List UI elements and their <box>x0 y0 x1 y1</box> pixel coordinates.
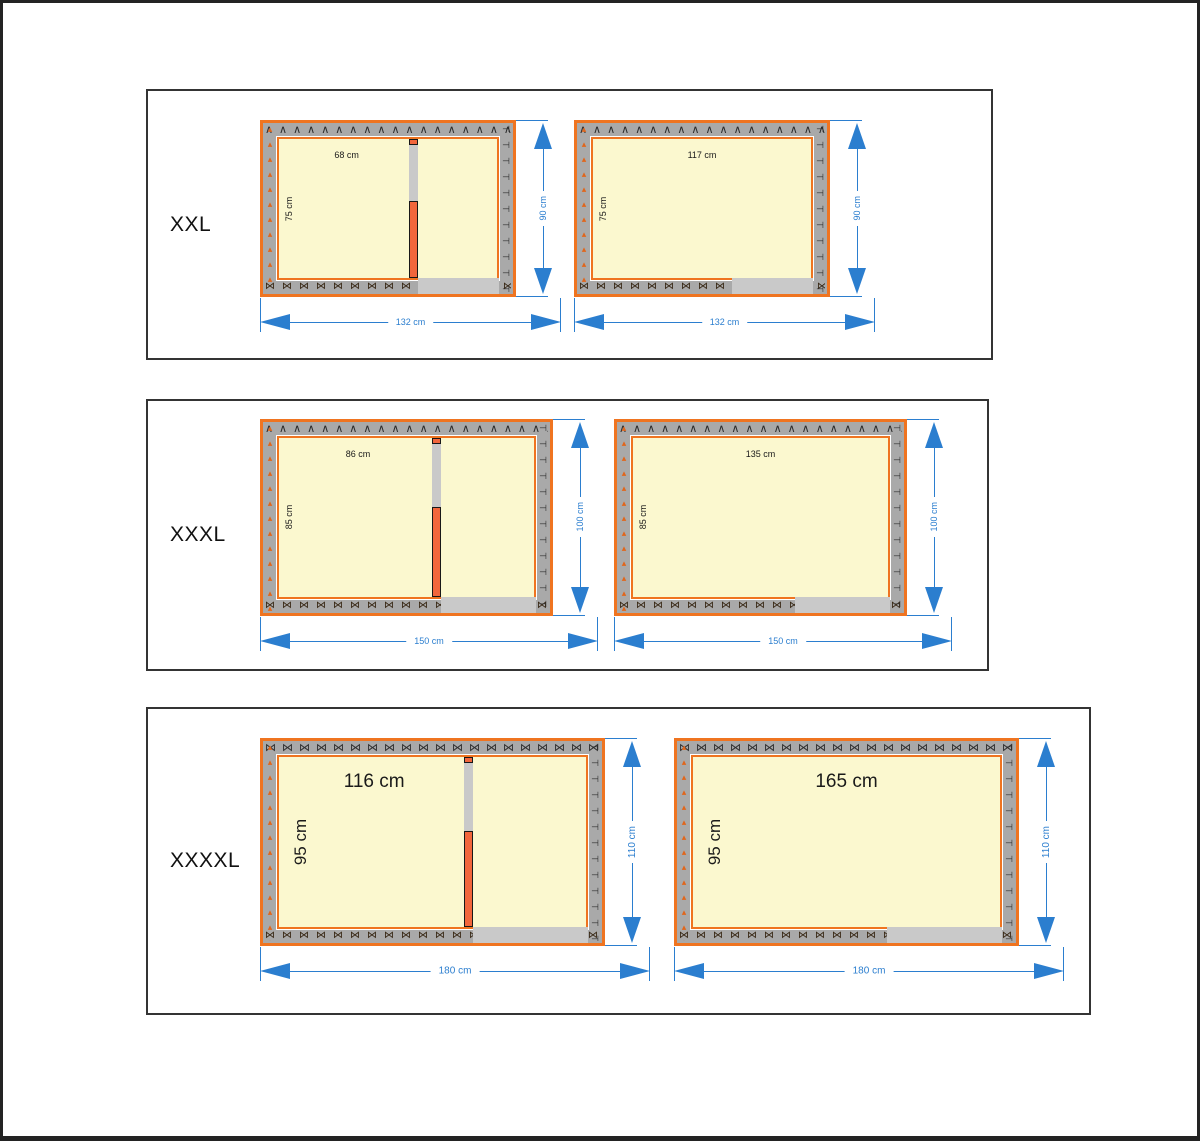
cage-floorplan: ∧∧∧∧∧∧∧∧∧∧∧∧∧∧∧∧∧∧∧∧∧∧∧∧∧∧ ⋈⋈⋈⋈⋈⋈⋈⋈⋈⋈⋈⋈⋈… <box>260 419 553 616</box>
divider-passage-opening <box>409 145 418 201</box>
room-width-label: 135 cm <box>746 449 776 459</box>
room-width-label: 116 cm <box>344 771 405 793</box>
height-dimension-label: 110 cm <box>627 821 638 863</box>
cage-floorplan: ∧∧∧∧∧∧∧∧∧∧∧∧∧∧∧∧∧∧∧∧∧∧∧∧∧∧ ⋈⋈⋈⋈⋈⋈⋈⋈⋈⋈⋈⋈⋈… <box>614 419 907 616</box>
arrow-left-icon <box>260 963 290 979</box>
width-dimension-label: 132 cm <box>702 317 748 327</box>
vertical-dimension: 100 cm <box>916 419 952 616</box>
insulation-hatch-left: ▴▴▴▴▴▴▴▴▴▴▴▴▴▴▴▴▴▴ <box>677 743 691 941</box>
room-width-label: 86 cm <box>346 449 371 459</box>
arrow-left-icon <box>260 314 290 330</box>
dimension-line <box>580 448 581 498</box>
horizontal-dimension: 132 cm <box>260 297 561 343</box>
dimension-line <box>857 226 858 268</box>
insulation-hatch-left: ▴▴▴▴▴▴▴▴▴▴▴▴▴▴▴▴▴▴ <box>263 125 277 292</box>
cage-floorplan: ∧∧∧∧∧∧∧∧∧∧∧∧∧∧∧∧∧∧∧∧∧∧∧∧∧∧ ⋈⋈⋈⋈⋈⋈⋈⋈⋈⋈⋈⋈⋈… <box>260 120 516 297</box>
room-height-label: 85 cm <box>284 505 294 530</box>
vertical-dimension: 110 cm <box>614 738 650 946</box>
arrow-up-icon <box>925 422 943 448</box>
panel-size-label: XXXXL <box>148 849 260 873</box>
vertical-dimension: 90 cm <box>839 120 875 297</box>
arrow-left-icon <box>614 633 644 649</box>
cage-interior: 117 cm 75 cm <box>591 137 813 280</box>
insulation-hatch-right: ⊣⊣⊣⊣⊣⊣⊣⊣⊣⊣⊣⊣⊣⊣⊣⊣⊣⊣ <box>536 424 550 611</box>
cage-figure-open: ∧∧∧∧∧∧∧∧∧∧∧∧∧∧∧∧∧∧∧∧∧∧∧∧∧∧ ⋈⋈⋈⋈⋈⋈⋈⋈⋈⋈⋈⋈⋈… <box>614 419 952 662</box>
panel-xxxl: XXXL ∧∧∧∧∧∧∧∧∧∧∧∧∧∧∧∧∧∧∧∧∧∧∧∧∧∧ ⋈⋈⋈⋈⋈⋈⋈⋈… <box>146 399 989 671</box>
height-dimension-label: 100 cm <box>575 497 585 537</box>
dimension-tick <box>1019 738 1051 739</box>
height-dimension-label: 90 cm <box>538 191 548 226</box>
figures-row: ∧∧∧∧∧∧∧∧∧∧∧∧∧∧∧∧∧∧∧∧∧∧∧∧∧∧ ⋈⋈⋈⋈⋈⋈⋈⋈⋈⋈⋈⋈⋈… <box>260 419 952 662</box>
cage-floorplan: ⋈⋈⋈⋈⋈⋈⋈⋈⋈⋈⋈⋈⋈⋈⋈⋈⋈⋈⋈⋈⋈⋈⋈⋈⋈⋈ ⋈⋈⋈⋈⋈⋈⋈⋈⋈⋈⋈⋈⋈… <box>674 738 1019 946</box>
cage-figure-open: ⋈⋈⋈⋈⋈⋈⋈⋈⋈⋈⋈⋈⋈⋈⋈⋈⋈⋈⋈⋈⋈⋈⋈⋈⋈⋈ ⋈⋈⋈⋈⋈⋈⋈⋈⋈⋈⋈⋈⋈… <box>674 738 1064 992</box>
room-height-label: 75 cm <box>598 196 608 221</box>
door-opening <box>418 278 499 294</box>
dimension-line <box>934 448 935 498</box>
room-height-label: 95 cm <box>705 819 725 865</box>
insulation-hatch-top: ∧∧∧∧∧∧∧∧∧∧∧∧∧∧∧∧∧∧∧∧∧∧∧∧∧∧ <box>265 422 548 436</box>
door-opening <box>732 278 813 294</box>
dimension-tick <box>830 120 862 121</box>
insulation-hatch-top: ∧∧∧∧∧∧∧∧∧∧∧∧∧∧∧∧∧∧∧∧∧∧∧∧∧∧ <box>579 123 825 137</box>
arrow-up-icon <box>623 741 641 767</box>
room-width-label: 68 cm <box>334 150 359 160</box>
arrow-right-icon <box>620 963 650 979</box>
vertical-dimension: 110 cm <box>1028 738 1064 946</box>
arrow-up-icon <box>848 123 866 149</box>
arrow-down-icon <box>848 268 866 294</box>
panel-size-label: XXL <box>148 213 260 237</box>
arrow-right-icon <box>922 633 952 649</box>
door-opening <box>795 597 890 613</box>
insulation-hatch-left: ▴▴▴▴▴▴▴▴▴▴▴▴▴▴▴▴▴▴ <box>577 125 591 292</box>
dimension-line <box>1046 863 1047 917</box>
panel-xxxxl: XXXXL ⋈⋈⋈⋈⋈⋈⋈⋈⋈⋈⋈⋈⋈⋈⋈⋈⋈⋈⋈⋈⋈⋈⋈⋈⋈⋈ ⋈⋈⋈⋈⋈⋈⋈… <box>146 707 1091 1015</box>
horizontal-dimension: 132 cm <box>574 297 875 343</box>
dimension-line <box>1046 767 1047 821</box>
room-width-label: 117 cm <box>688 150 717 160</box>
arrow-left-icon <box>674 963 704 979</box>
figures-row: ⋈⋈⋈⋈⋈⋈⋈⋈⋈⋈⋈⋈⋈⋈⋈⋈⋈⋈⋈⋈⋈⋈⋈⋈⋈⋈ ⋈⋈⋈⋈⋈⋈⋈⋈⋈⋈⋈⋈⋈… <box>260 738 1064 992</box>
dimension-line <box>857 149 858 191</box>
dimension-tick <box>553 419 585 420</box>
door-opening <box>441 597 536 613</box>
height-dimension-label: 90 cm <box>852 191 862 226</box>
arrow-down-icon <box>623 917 641 943</box>
insulation-hatch-right: ⊣⊣⊣⊣⊣⊣⊣⊣⊣⊣⊣⊣⊣⊣⊣⊣⊣⊣ <box>588 743 602 941</box>
room-divider <box>409 139 418 278</box>
divider-wall <box>464 831 473 927</box>
panel-xxl: XXL ∧∧∧∧∧∧∧∧∧∧∧∧∧∧∧∧∧∧∧∧∧∧∧∧∧∧ ⋈⋈⋈⋈⋈⋈⋈⋈⋈… <box>146 89 993 360</box>
arrow-right-icon <box>531 314 561 330</box>
arrow-left-icon <box>260 633 290 649</box>
dimension-line <box>632 863 633 917</box>
width-dimension-label: 150 cm <box>760 636 806 646</box>
width-dimension-label: 180 cm <box>845 966 894 977</box>
room-height-label: 95 cm <box>291 819 311 865</box>
height-dimension-label: 100 cm <box>929 497 939 537</box>
panel-size-label: XXXL <box>148 523 260 547</box>
vertical-dimension: 100 cm <box>562 419 598 616</box>
cage-interior: 135 cm 85 cm <box>631 436 890 599</box>
door-opening <box>473 927 588 943</box>
vertical-dimension: 90 cm <box>525 120 561 297</box>
dimension-line <box>543 149 544 191</box>
insulation-hatch-top: ∧∧∧∧∧∧∧∧∧∧∧∧∧∧∧∧∧∧∧∧∧∧∧∧∧∧ <box>265 123 511 137</box>
room-height-label: 85 cm <box>638 505 648 530</box>
horizontal-dimension: 180 cm <box>674 946 1064 992</box>
arrow-down-icon <box>571 587 589 613</box>
insulation-hatch-top: ⋈⋈⋈⋈⋈⋈⋈⋈⋈⋈⋈⋈⋈⋈⋈⋈⋈⋈⋈⋈⋈⋈⋈⋈⋈⋈ <box>679 741 1014 755</box>
room-divider <box>432 438 441 597</box>
width-dimension-label: 132 cm <box>388 317 434 327</box>
cage-figure-divided: ⋈⋈⋈⋈⋈⋈⋈⋈⋈⋈⋈⋈⋈⋈⋈⋈⋈⋈⋈⋈⋈⋈⋈⋈⋈⋈ ⋈⋈⋈⋈⋈⋈⋈⋈⋈⋈⋈⋈⋈… <box>260 738 650 992</box>
arrow-right-icon <box>568 633 598 649</box>
divider-wall <box>409 201 418 278</box>
arrow-up-icon <box>534 123 552 149</box>
dimension-line <box>632 767 633 821</box>
insulation-hatch-right: ⊣⊣⊣⊣⊣⊣⊣⊣⊣⊣⊣⊣⊣⊣⊣⊣⊣⊣ <box>499 125 513 292</box>
insulation-hatch-top: ⋈⋈⋈⋈⋈⋈⋈⋈⋈⋈⋈⋈⋈⋈⋈⋈⋈⋈⋈⋈⋈⋈⋈⋈⋈⋈ <box>265 741 600 755</box>
cage-figure-divided: ∧∧∧∧∧∧∧∧∧∧∧∧∧∧∧∧∧∧∧∧∧∧∧∧∧∧ ⋈⋈⋈⋈⋈⋈⋈⋈⋈⋈⋈⋈⋈… <box>260 120 561 343</box>
cage-interior: 165 cm 95 cm <box>691 755 1002 929</box>
insulation-hatch-left: ▴▴▴▴▴▴▴▴▴▴▴▴▴▴▴▴▴▴ <box>263 743 277 941</box>
room-width-label: 165 cm <box>815 771 877 793</box>
cage-figure-open: ∧∧∧∧∧∧∧∧∧∧∧∧∧∧∧∧∧∧∧∧∧∧∧∧∧∧ ⋈⋈⋈⋈⋈⋈⋈⋈⋈⋈⋈⋈⋈… <box>574 120 875 343</box>
arrow-right-icon <box>845 314 875 330</box>
room-divider <box>464 757 473 927</box>
cage-floorplan: ⋈⋈⋈⋈⋈⋈⋈⋈⋈⋈⋈⋈⋈⋈⋈⋈⋈⋈⋈⋈⋈⋈⋈⋈⋈⋈ ⋈⋈⋈⋈⋈⋈⋈⋈⋈⋈⋈⋈⋈… <box>260 738 605 946</box>
divider-passage-opening <box>464 763 473 831</box>
height-dimension-label: 110 cm <box>1041 821 1052 863</box>
insulation-hatch-left: ▴▴▴▴▴▴▴▴▴▴▴▴▴▴▴▴▴▴ <box>263 424 277 611</box>
cage-floorplan: ∧∧∧∧∧∧∧∧∧∧∧∧∧∧∧∧∧∧∧∧∧∧∧∧∧∧ ⋈⋈⋈⋈⋈⋈⋈⋈⋈⋈⋈⋈⋈… <box>574 120 830 297</box>
horizontal-dimension: 150 cm <box>614 616 952 662</box>
dimension-line <box>580 537 581 587</box>
divider-wall <box>432 507 441 596</box>
arrow-down-icon <box>925 587 943 613</box>
insulation-hatch-left: ▴▴▴▴▴▴▴▴▴▴▴▴▴▴▴▴▴▴ <box>617 424 631 611</box>
horizontal-dimension: 150 cm <box>260 616 598 662</box>
dimension-tick <box>605 738 637 739</box>
arrow-down-icon <box>534 268 552 294</box>
cage-interior: 116 cm 95 cm <box>277 755 588 929</box>
insulation-hatch-top: ∧∧∧∧∧∧∧∧∧∧∧∧∧∧∧∧∧∧∧∧∧∧∧∧∧∧ <box>619 422 902 436</box>
figures-row: ∧∧∧∧∧∧∧∧∧∧∧∧∧∧∧∧∧∧∧∧∧∧∧∧∧∧ ⋈⋈⋈⋈⋈⋈⋈⋈⋈⋈⋈⋈⋈… <box>260 120 875 343</box>
insulation-hatch-right: ⊣⊣⊣⊣⊣⊣⊣⊣⊣⊣⊣⊣⊣⊣⊣⊣⊣⊣ <box>813 125 827 292</box>
divider-passage-opening <box>432 444 441 508</box>
cage-figure-divided: ∧∧∧∧∧∧∧∧∧∧∧∧∧∧∧∧∧∧∧∧∧∧∧∧∧∧ ⋈⋈⋈⋈⋈⋈⋈⋈⋈⋈⋈⋈⋈… <box>260 419 598 662</box>
cage-interior: 68 cm 75 cm <box>277 137 499 280</box>
insulation-hatch-right: ⊣⊣⊣⊣⊣⊣⊣⊣⊣⊣⊣⊣⊣⊣⊣⊣⊣⊣ <box>890 424 904 611</box>
dimension-line <box>934 537 935 587</box>
arrow-up-icon <box>1037 741 1055 767</box>
insulation-hatch-right: ⊣⊣⊣⊣⊣⊣⊣⊣⊣⊣⊣⊣⊣⊣⊣⊣⊣⊣ <box>1002 743 1016 941</box>
dimension-tick <box>907 419 939 420</box>
cage-interior: 86 cm 85 cm <box>277 436 536 599</box>
room-height-label: 75 cm <box>284 196 294 221</box>
dimension-line <box>543 226 544 268</box>
arrow-up-icon <box>571 422 589 448</box>
horizontal-dimension: 180 cm <box>260 946 650 992</box>
door-opening <box>887 927 1002 943</box>
diagram-page: XXL ∧∧∧∧∧∧∧∧∧∧∧∧∧∧∧∧∧∧∧∧∧∧∧∧∧∧ ⋈⋈⋈⋈⋈⋈⋈⋈⋈… <box>0 0 1200 1141</box>
arrow-right-icon <box>1034 963 1064 979</box>
dimension-tick <box>516 120 548 121</box>
width-dimension-label: 150 cm <box>406 636 452 646</box>
arrow-left-icon <box>574 314 604 330</box>
arrow-down-icon <box>1037 917 1055 943</box>
width-dimension-label: 180 cm <box>431 966 480 977</box>
